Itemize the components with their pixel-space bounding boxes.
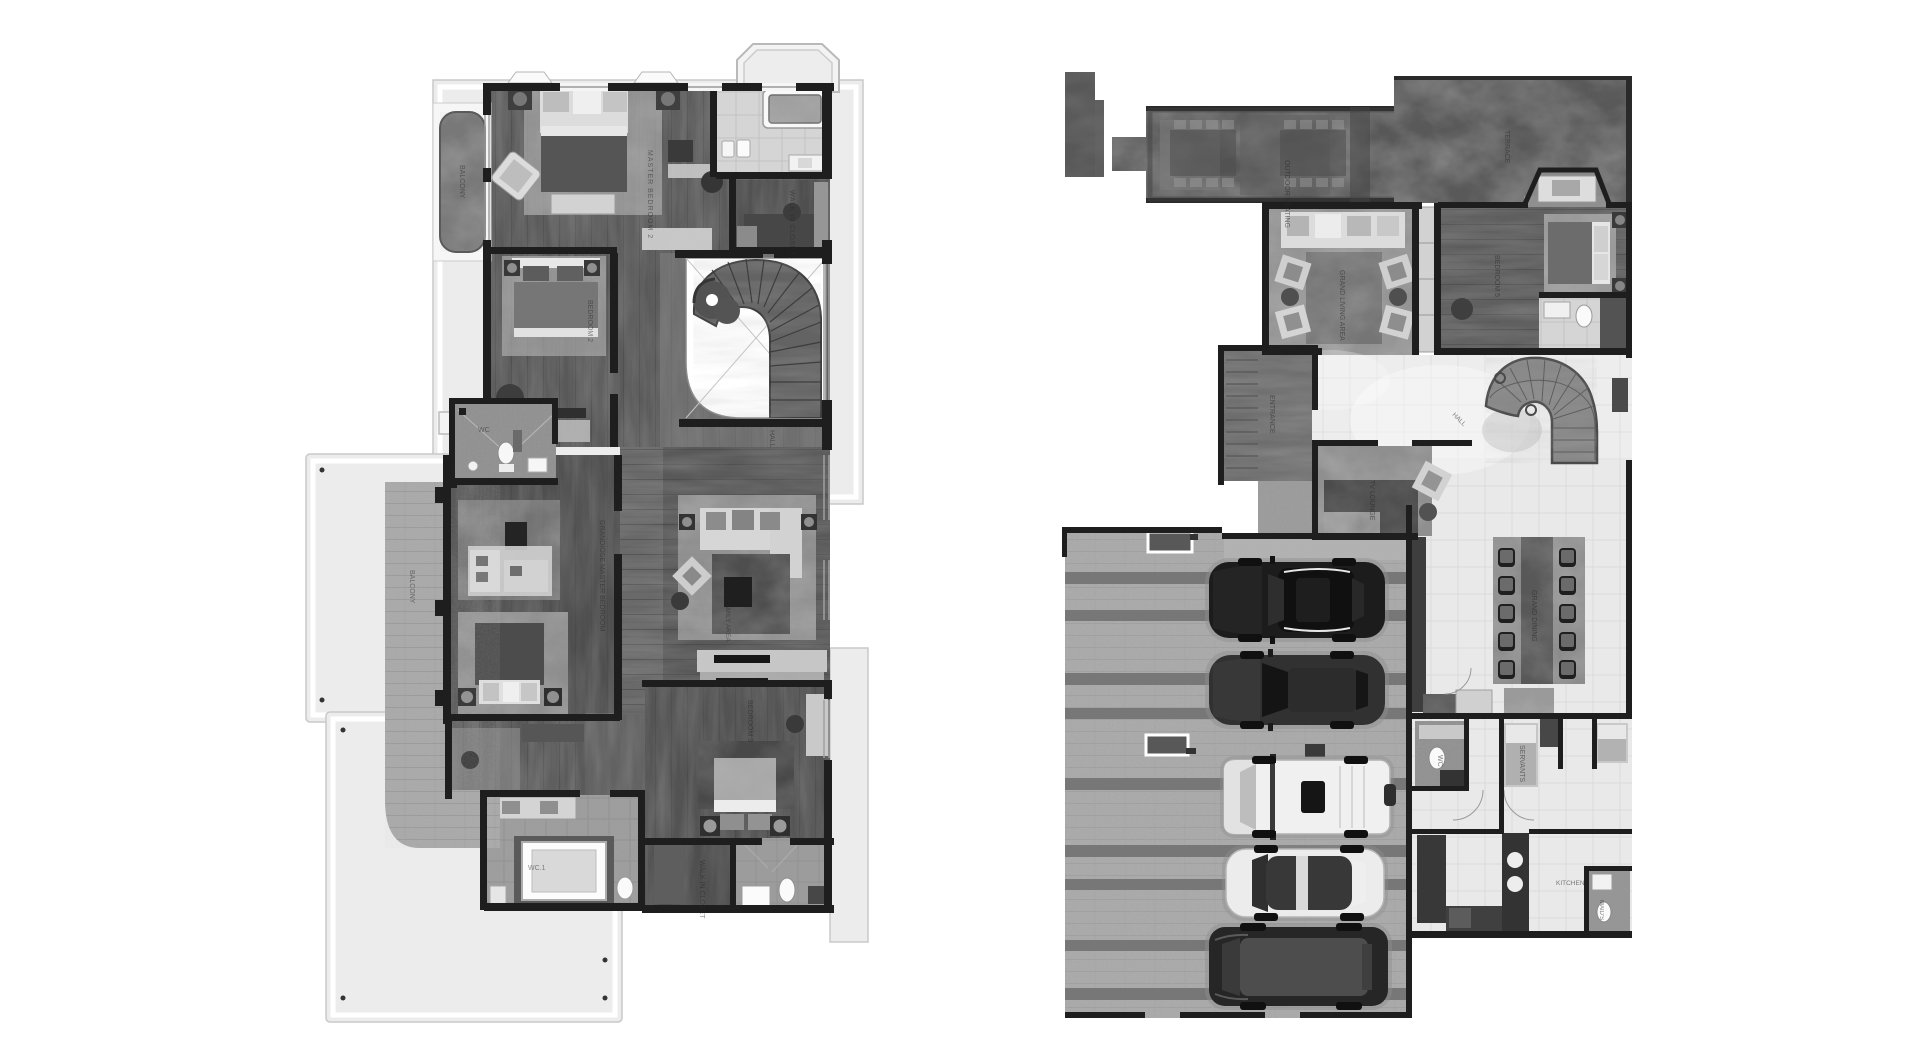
svg-text:GRANDIOSE MASTER BEDROOM: GRANDIOSE MASTER BEDROOM bbox=[598, 520, 605, 631]
svg-text:BEDROOM 3: BEDROOM 3 bbox=[746, 700, 753, 742]
svg-text:BEDROOM 2: BEDROOM 2 bbox=[586, 300, 593, 342]
svg-text:OUTDOOR SEATING: OUTDOOR SEATING bbox=[1283, 160, 1290, 228]
svg-text:MASTER BEDROOM 2: MASTER BEDROOM 2 bbox=[646, 150, 653, 239]
svg-text:GRAND DINING: GRAND DINING bbox=[1530, 590, 1537, 642]
svg-text:WC.1: WC.1 bbox=[528, 865, 546, 872]
svg-text:BALCONY: BALCONY bbox=[458, 165, 465, 199]
svg-text:WALK IN CLOSET: WALK IN CLOSET bbox=[698, 860, 705, 919]
svg-text:GRAND LIVING AREA: GRAND LIVING AREA bbox=[1338, 270, 1345, 341]
svg-text:SERVANTS: SERVANTS bbox=[1518, 745, 1525, 782]
svg-text:TERRACE: TERRACE bbox=[1503, 130, 1510, 164]
svg-text:BALCONY: BALCONY bbox=[408, 570, 415, 604]
svg-text:MAID'S: MAID'S bbox=[1598, 900, 1604, 920]
svg-text:TV LOUNGE: TV LOUNGE bbox=[1368, 480, 1375, 521]
svg-text:BEDROOM 5: BEDROOM 5 bbox=[1493, 255, 1500, 297]
svg-text:HALL: HALL bbox=[768, 430, 775, 448]
svg-text:ENTRANCE: ENTRANCE bbox=[1268, 395, 1275, 434]
svg-text:WC: WC bbox=[478, 427, 490, 434]
svg-text:KITCHEN: KITCHEN bbox=[1556, 880, 1585, 887]
svg-text:FAMILY AREA: FAMILY AREA bbox=[724, 600, 731, 642]
svg-text:WC: WC bbox=[1436, 755, 1443, 767]
svg-text:WALK IN CLOSET: WALK IN CLOSET bbox=[788, 190, 795, 256]
